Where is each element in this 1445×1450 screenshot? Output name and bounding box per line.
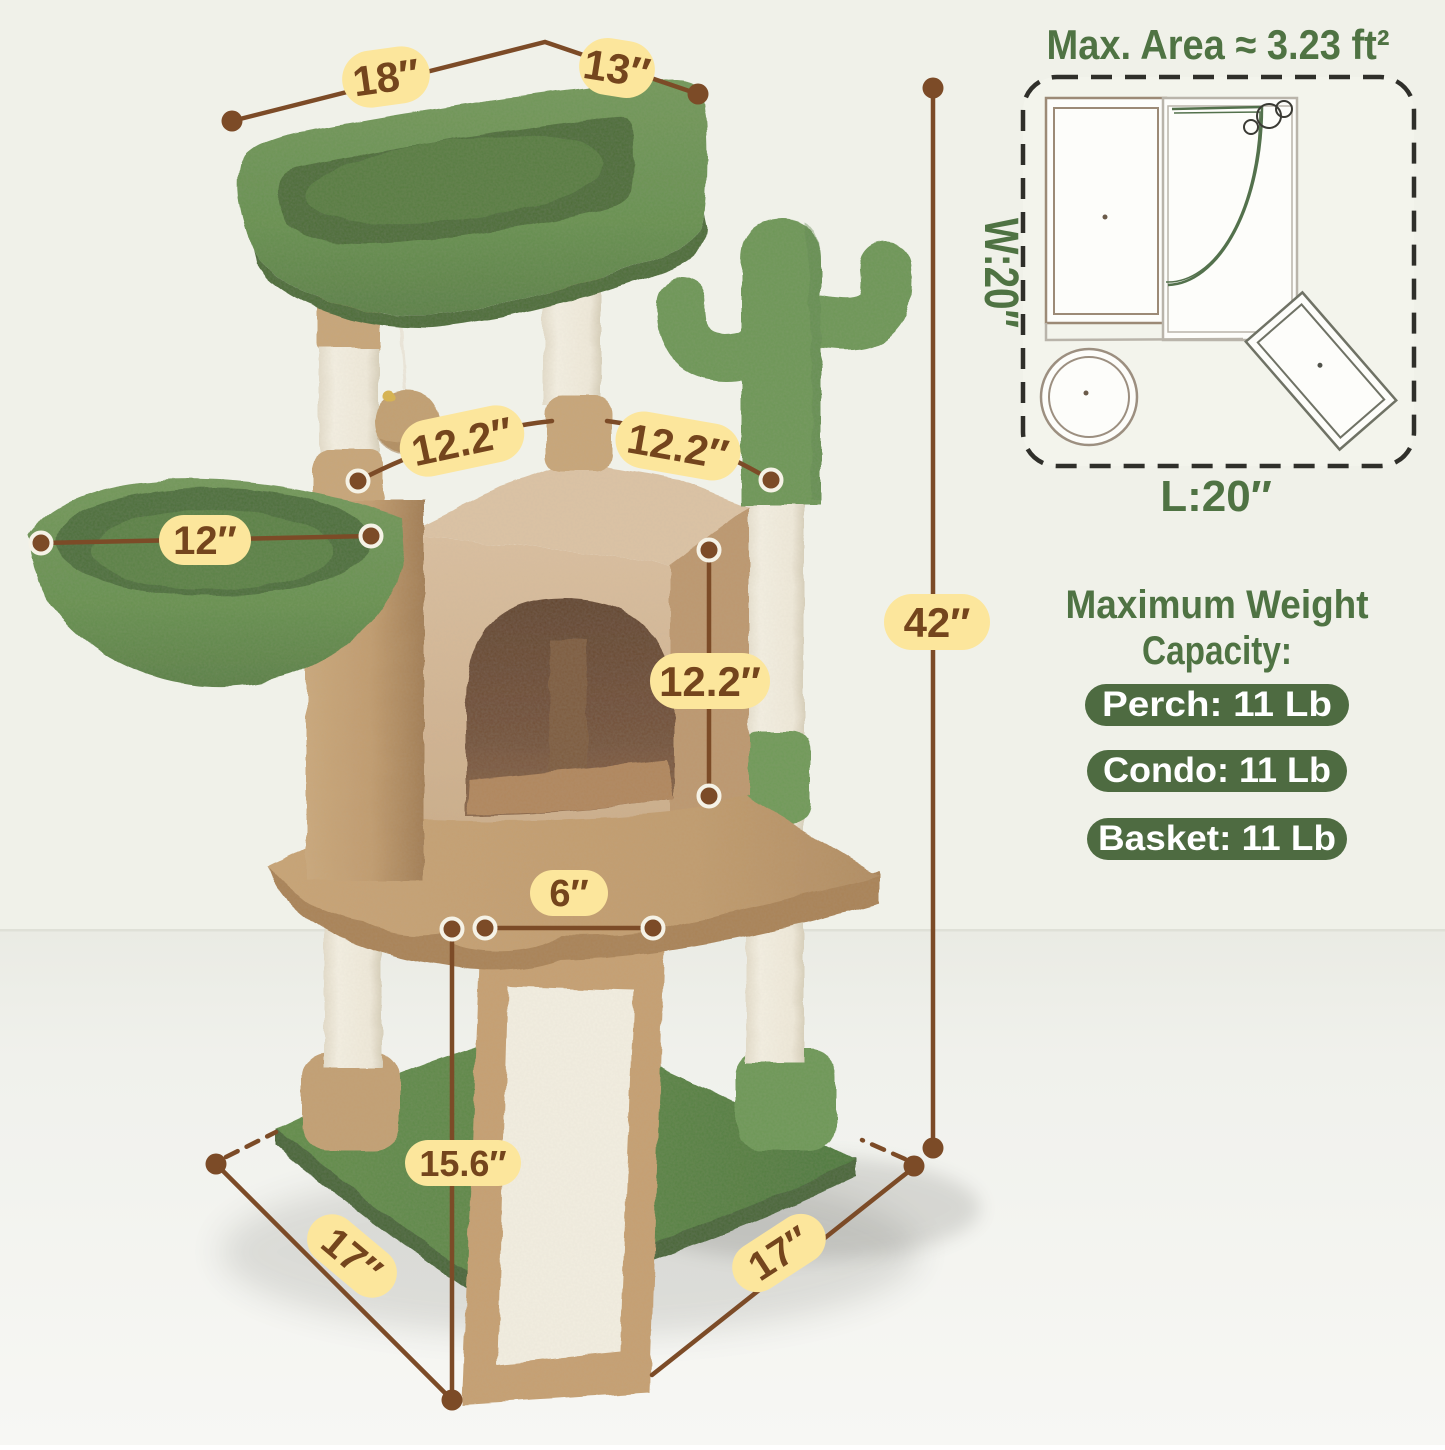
svg-text:12.2″: 12.2″ (659, 658, 761, 705)
svg-text:Max. Area ≈ 3.23 ft²: Max. Area ≈ 3.23 ft² (1047, 21, 1390, 68)
svg-text:Capacity:: Capacity: (1142, 629, 1292, 673)
svg-text:12″: 12″ (173, 519, 237, 563)
svg-text:42″: 42″ (904, 599, 971, 646)
svg-text:Perch: 11 Lb: Perch: 11 Lb (1102, 685, 1332, 724)
svg-text:6″: 6″ (549, 873, 588, 915)
svg-text:Maximum Weight: Maximum Weight (1066, 583, 1369, 627)
svg-text:Condo: 11 Lb: Condo: 11 Lb (1103, 751, 1331, 790)
svg-text:Basket: 11 Lb: Basket: 11 Lb (1098, 819, 1336, 858)
svg-text:L:20″: L:20″ (1160, 472, 1272, 521)
svg-text:18″: 18″ (350, 50, 423, 106)
svg-text:15.6″: 15.6″ (419, 1143, 506, 1184)
svg-text:W:20″: W:20″ (974, 218, 1027, 328)
